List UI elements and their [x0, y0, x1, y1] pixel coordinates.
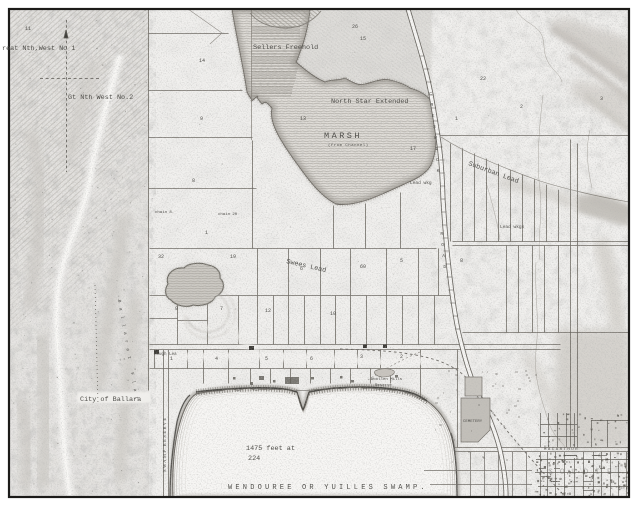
svg-text:D: D	[443, 264, 446, 270]
svg-text:1: 1	[205, 230, 208, 236]
svg-text:1: 1	[455, 116, 458, 122]
svg-text:S: S	[433, 124, 436, 130]
svg-text:32: 32	[158, 254, 164, 260]
svg-text:11: 11	[25, 26, 31, 32]
svg-text:A: A	[442, 253, 445, 259]
svg-text:26: 26	[352, 24, 358, 30]
svg-text:R: R	[431, 102, 434, 108]
svg-text:5: 5	[400, 258, 403, 264]
svg-text:5: 5	[265, 356, 268, 362]
svg-text:SOLDIE: SOLDIE	[548, 468, 619, 477]
svg-text:60: 60	[360, 264, 366, 270]
svg-text:Reserve: Reserve	[375, 383, 392, 388]
svg-text:6: 6	[310, 356, 313, 362]
svg-text:15: 15	[360, 36, 366, 42]
svg-text:Woollen Mills: Woollen Mills	[371, 377, 403, 382]
svg-text:14: 14	[199, 58, 205, 64]
svg-text:Gt Nth West No.2: Gt Nth West No.2	[68, 94, 133, 102]
svg-text:Sellers Freehold: Sellers Freehold	[253, 44, 318, 52]
svg-text:C: C	[429, 91, 432, 97]
svg-text:224: 224	[248, 455, 260, 463]
svg-text:chain 8.: chain 8.	[155, 210, 174, 215]
svg-text:reat Nth,West No 1: reat Nth,West No 1	[2, 45, 75, 53]
svg-text:Hough Lea: Hough Lea	[154, 352, 177, 357]
svg-text:13: 13	[300, 116, 306, 122]
svg-text:W: W	[434, 135, 437, 141]
svg-text:7: 7	[220, 306, 223, 312]
svg-text:9: 9	[200, 116, 203, 122]
svg-text:3: 3	[360, 354, 363, 360]
svg-text:K: K	[437, 168, 440, 174]
svg-text:City of Ballara: City of Ballara	[80, 396, 141, 404]
svg-text:3: 3	[600, 96, 603, 102]
svg-text:Lead wkg: Lead wkg	[410, 180, 432, 186]
svg-text:chain 20: chain 20	[218, 212, 238, 217]
svg-text:E: E	[432, 113, 435, 119]
svg-text:Lead wkgs: Lead wkgs	[500, 224, 525, 230]
svg-text:R: R	[440, 231, 443, 237]
svg-text:1475 feet at: 1475 feet at	[246, 445, 295, 453]
svg-text:MARSH: MARSH	[324, 131, 362, 141]
svg-text:6: 6	[300, 266, 303, 272]
svg-text:C: C	[436, 157, 439, 163]
svg-text:CEMETERY: CEMETERY	[463, 420, 483, 424]
svg-text:12: 12	[265, 308, 271, 314]
svg-text:8: 8	[192, 178, 195, 184]
svg-text:17: 17	[410, 146, 416, 152]
svg-text:WENDOUREE OR YUILLES SWAMP.: WENDOUREE OR YUILLES SWAMP.	[228, 484, 428, 492]
svg-text:O: O	[441, 242, 444, 248]
svg-text:19: 19	[230, 254, 236, 260]
svg-text:22: 22	[480, 76, 486, 82]
svg-text:2: 2	[400, 354, 403, 360]
svg-text:North Star Extended: North Star Extended	[331, 98, 409, 106]
svg-text:SWAMP RESERVE: SWAMP RESERVE	[162, 416, 167, 472]
svg-text:2: 2	[520, 104, 523, 110]
svg-text:I: I	[435, 146, 438, 152]
svg-text:8: 8	[460, 258, 463, 264]
svg-text:(from Channel): (from Channel)	[328, 143, 369, 148]
svg-text:MACARTHUR: MACARTHUR	[544, 448, 579, 452]
svg-text:9: 9	[175, 306, 178, 312]
svg-text:10: 10	[330, 311, 336, 317]
svg-text:4: 4	[215, 356, 218, 362]
